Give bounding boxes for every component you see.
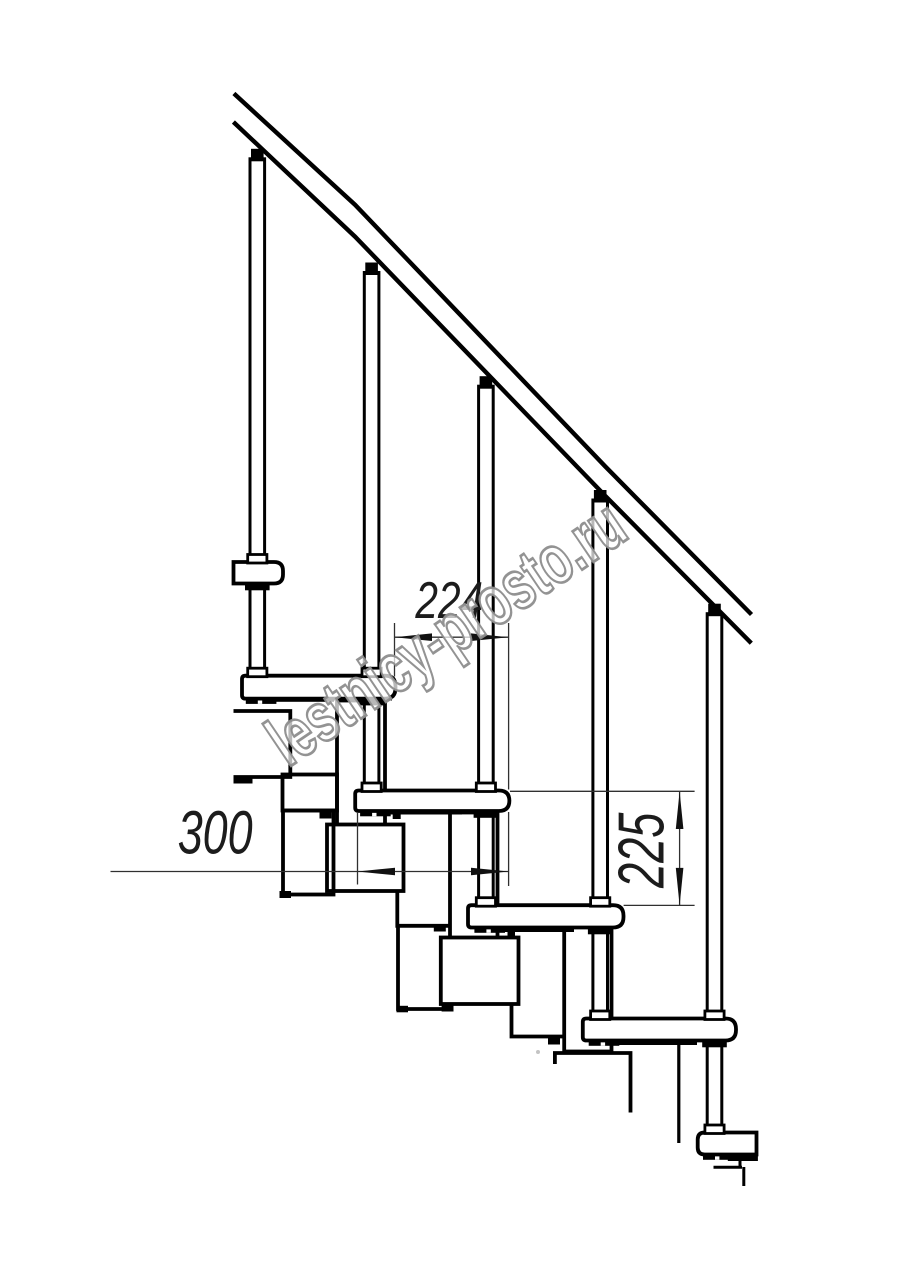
- svg-text:225: 225: [606, 812, 678, 889]
- svg-text:300: 300: [178, 798, 253, 867]
